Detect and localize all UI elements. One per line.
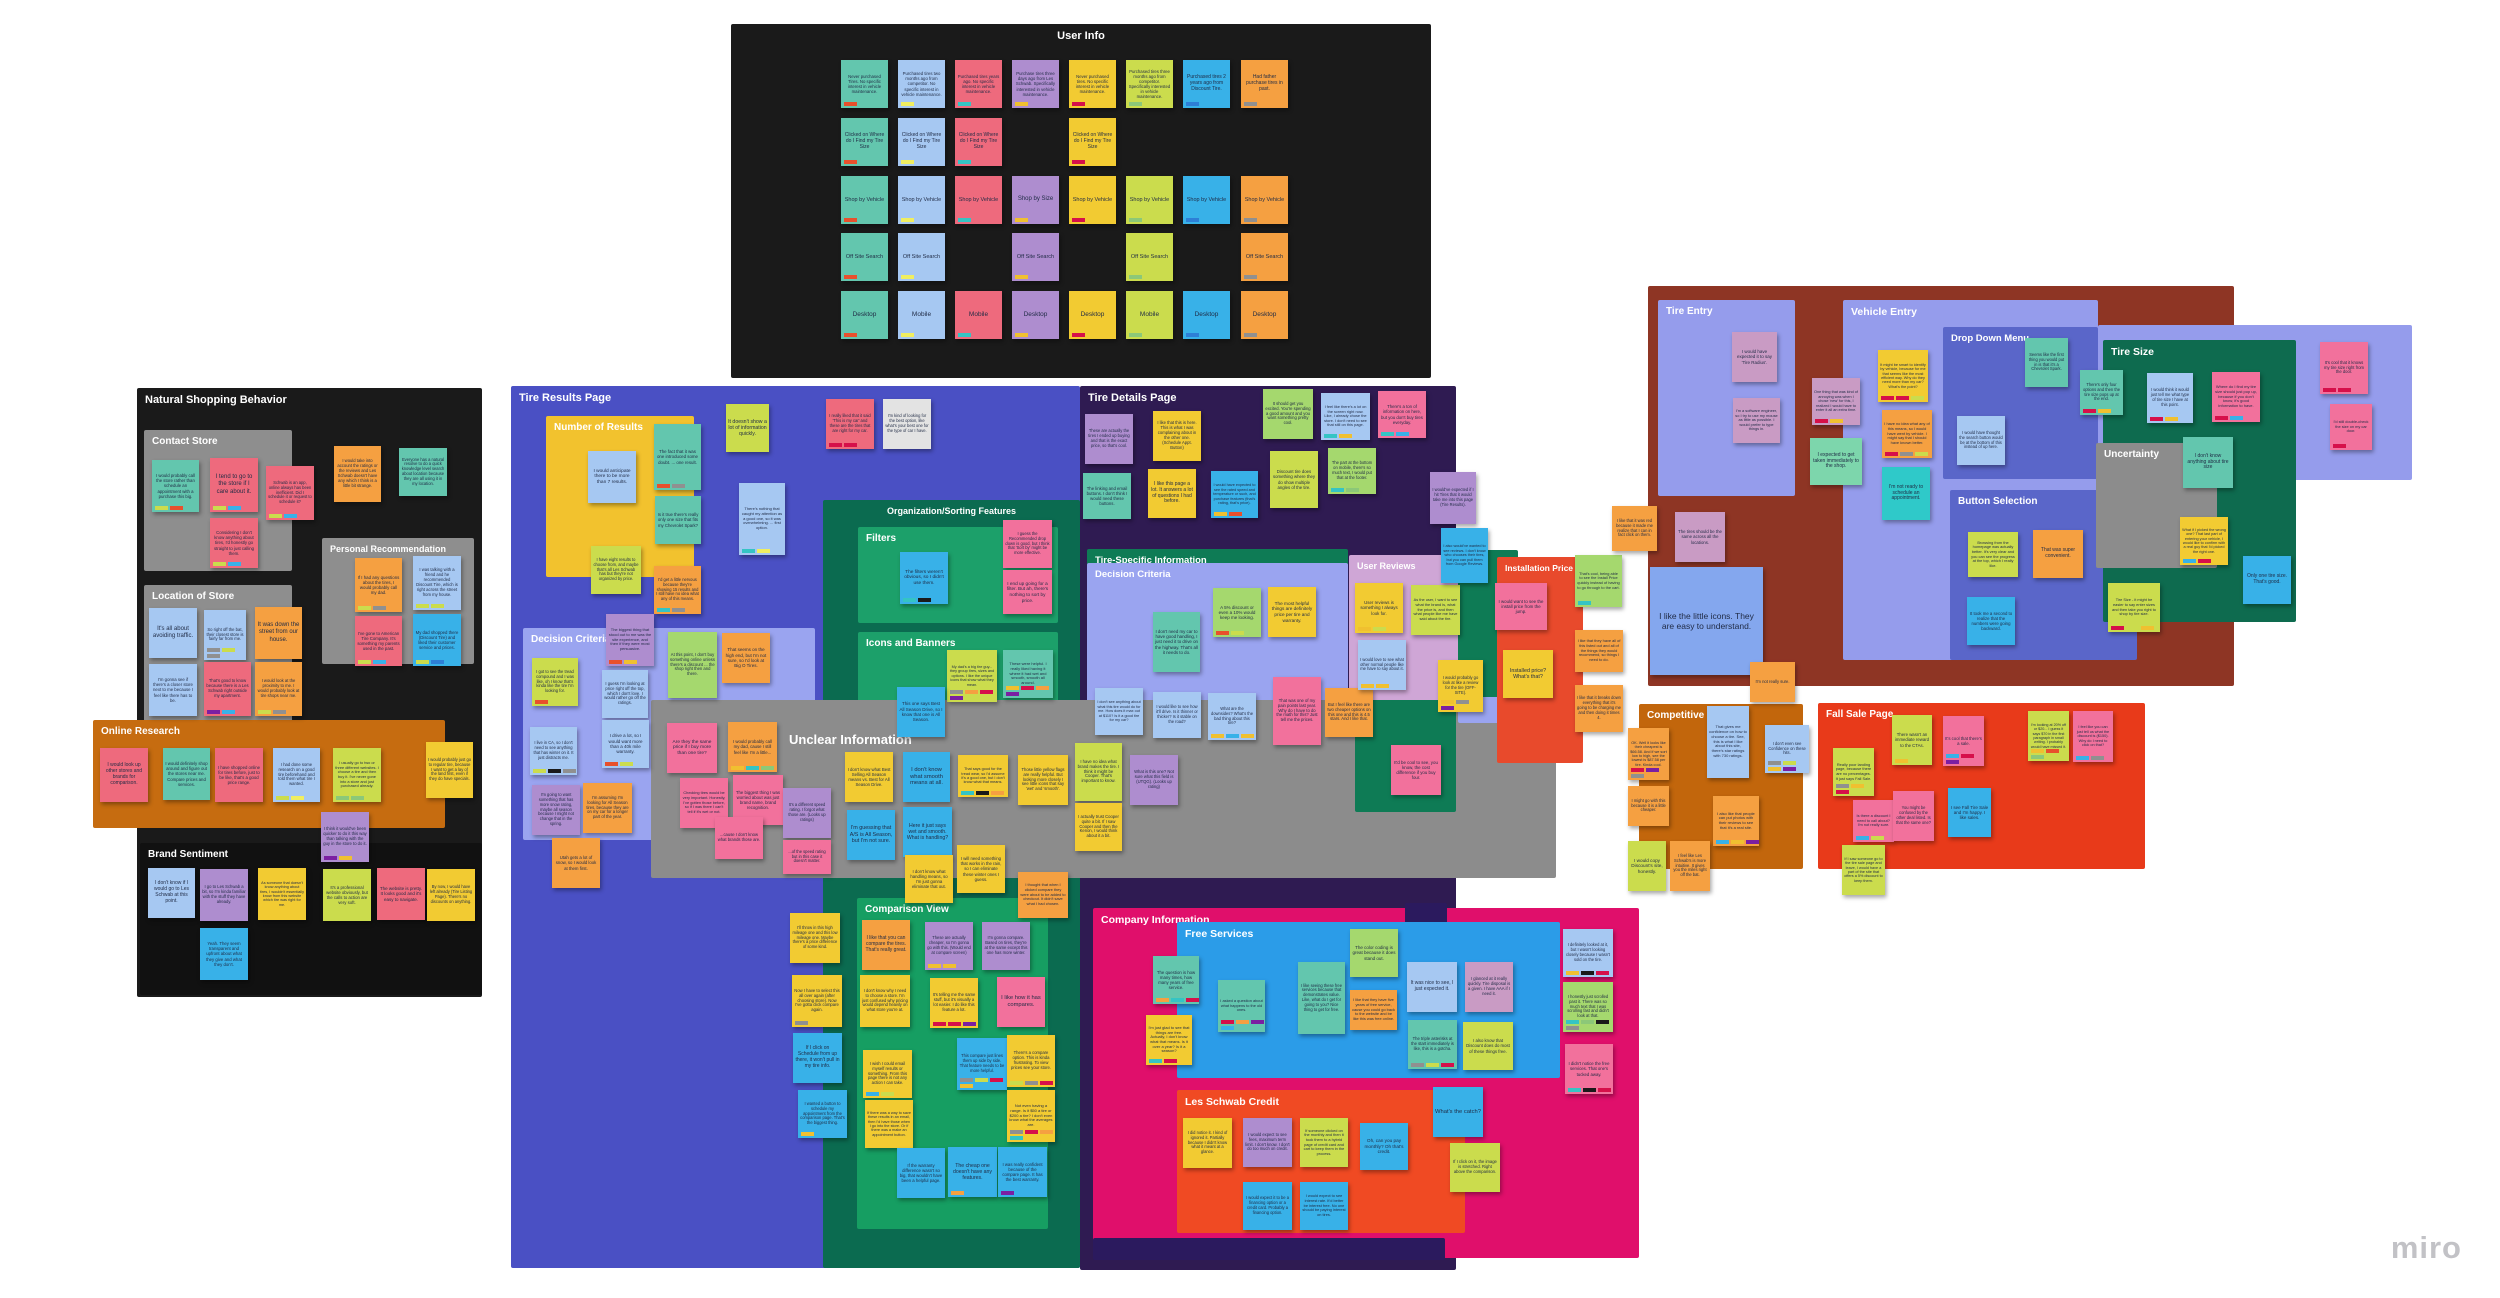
sticky-note[interactable]: If someone clicked on the monthly and th… bbox=[1300, 1118, 1348, 1167]
sticky-note[interactable]: The fact that it was one introduced some… bbox=[654, 424, 701, 490]
sticky-note[interactable]: That was one of my pain points last year… bbox=[1273, 677, 1321, 745]
sticky-note[interactable]: I don't know why I need to choose a stor… bbox=[860, 975, 910, 1027]
sticky-note[interactable]: I don't know anything about tire size bbox=[2183, 437, 2233, 488]
sticky-note[interactable]: I like that they have five years of free… bbox=[1350, 990, 1397, 1030]
sticky-note[interactable]: Really poor landing page, because there … bbox=[1833, 748, 1874, 796]
sticky-note[interactable]: Are they the same price if I buy more th… bbox=[667, 723, 717, 773]
sticky-note-text: I'd still double-check the size on my ca… bbox=[2332, 420, 2370, 434]
note-tag bbox=[1244, 333, 1257, 337]
sticky-note[interactable]: Clicked on Where do I Find my Tire Size bbox=[955, 118, 1002, 166]
sticky-note[interactable]: It's telling me the same stuff, but it's… bbox=[930, 978, 978, 1028]
sticky-note[interactable]: As someone that doesn't know anything ab… bbox=[258, 868, 306, 920]
sticky-note[interactable]: A 5% discount or even a 10% would keep m… bbox=[1213, 588, 1261, 637]
note-tag-row bbox=[901, 160, 914, 164]
sticky-note[interactable]: I was really confident because of the co… bbox=[998, 1147, 1047, 1197]
sticky-note[interactable]: That's good to know because there is a L… bbox=[204, 662, 251, 716]
sticky-note[interactable]: I would probably just go to regular tire… bbox=[426, 742, 473, 798]
sticky-note[interactable]: I like how it has compares. bbox=[997, 977, 1045, 1027]
note-tag bbox=[948, 1022, 961, 1026]
sticky-note-text: Only one tire size. That's good. bbox=[2245, 574, 2289, 586]
sticky-note[interactable]: I'll throw in this high mileage one and … bbox=[790, 913, 840, 963]
sticky-note[interactable]: Off Site Search bbox=[898, 233, 945, 281]
sticky-note[interactable]: I will need something that works in the … bbox=[957, 845, 1005, 893]
note-tag-row bbox=[2215, 416, 2243, 420]
sticky-note[interactable]: Mobile bbox=[898, 291, 945, 339]
note-tag bbox=[950, 696, 963, 700]
sticky-note[interactable]: I definitely looked at it, but I wasn't … bbox=[1563, 929, 1613, 977]
sticky-note[interactable]: Purchased tires three months ago from co… bbox=[1126, 60, 1173, 108]
sticky-note[interactable]: I was talking with a friend and he recom… bbox=[413, 556, 461, 610]
sticky-note-text: The fact that it was one introduced some… bbox=[656, 449, 699, 465]
sticky-note[interactable]: I don't need my car to have good handlin… bbox=[1153, 612, 1200, 672]
sticky-note[interactable]: I like the little icons. They are easy t… bbox=[1650, 567, 1763, 675]
note-tag bbox=[844, 218, 857, 222]
sticky-note[interactable]: I would have expected to see the rated s… bbox=[1211, 471, 1258, 518]
sticky-note[interactable]: I usually go to two or three different w… bbox=[333, 748, 381, 802]
sticky-note[interactable]: I might go with this because it is a lit… bbox=[1628, 786, 1669, 826]
sticky-note[interactable]: Clicked on Where do I Find my Tire Size bbox=[898, 118, 945, 166]
sticky-note[interactable]: Those little yellow flags are really hel… bbox=[1018, 755, 1068, 805]
sticky-note-text: Off Site Search bbox=[843, 254, 886, 260]
sticky-note[interactable]: I would've expected if I hit Tires that … bbox=[1430, 472, 1476, 524]
sticky-note-text: The filters weren't obvious, so I didn't… bbox=[902, 570, 946, 587]
sticky-note[interactable]: I live in CA, so I don't need to see any… bbox=[530, 727, 577, 775]
sticky-note[interactable]: Had father purchase tires in past. bbox=[1241, 60, 1288, 108]
sticky-note-text: It's a professional website obviously, b… bbox=[325, 885, 369, 905]
sticky-note[interactable]: I would expect to see interest rate. It'… bbox=[1300, 1182, 1348, 1230]
sticky-note[interactable]: These were helpful. I really liked havin… bbox=[1003, 650, 1053, 698]
note-tag-row bbox=[258, 710, 286, 714]
sticky-note[interactable]: If I saw someone go to the tire sale pag… bbox=[1842, 845, 1885, 895]
note-tag-row bbox=[866, 1092, 894, 1096]
sticky-note[interactable]: I honestly just scrolled past it. There … bbox=[1563, 982, 1613, 1032]
sticky-note[interactable]: Shop by Size bbox=[1012, 176, 1059, 224]
sticky-note[interactable]: Shop by Vehicle bbox=[898, 176, 945, 224]
sticky-note[interactable]: The biggest thing that stood out to me w… bbox=[606, 614, 654, 666]
sticky-note[interactable]: Here it just says wet and smooth. What i… bbox=[903, 807, 952, 857]
sticky-note[interactable]: What is this one? Not sure what this fie… bbox=[1130, 755, 1178, 805]
sticky-note[interactable]: OK. Well it looks like their cheapest is… bbox=[1628, 728, 1669, 780]
sticky-note[interactable]: The linking and email buttons. I don't t… bbox=[1083, 473, 1131, 519]
sticky-note[interactable]: I'm kind of looking for the best option,… bbox=[883, 399, 931, 449]
sticky-note[interactable]: Not even having a range. Is it $50 a tir… bbox=[1007, 1090, 1055, 1142]
note-tag-row bbox=[1221, 1020, 1265, 1030]
sticky-note[interactable]: I would have thought the search button w… bbox=[1957, 416, 2005, 465]
sticky-note-text: Is it true there's really only one size … bbox=[657, 512, 699, 527]
sticky-note[interactable]: Never purchased Tires. No specific inter… bbox=[841, 60, 888, 108]
note-tag-row bbox=[1010, 1130, 1055, 1140]
sticky-note[interactable]: It's cool that there's a sale. bbox=[1943, 716, 1984, 766]
sticky-note[interactable]: But I feel like there are two cheaper op… bbox=[1325, 688, 1373, 737]
sticky-note[interactable]: Purchased tires years ago. No specific i… bbox=[955, 60, 1002, 108]
sticky-note[interactable]: I guess I'm looking at price right off t… bbox=[602, 670, 648, 718]
sticky-note[interactable]: I don't know what handling means, so I'm… bbox=[905, 855, 953, 903]
sticky-note[interactable]: I'm just glad to see that things are fre… bbox=[1146, 1015, 1192, 1065]
sticky-note-text: Those little yellow flags are really hel… bbox=[1020, 768, 1066, 793]
sticky-note[interactable]: I thought that when I clicked compare th… bbox=[1018, 872, 1068, 918]
sticky-note[interactable]: One thing that was kind of annoying was … bbox=[1812, 378, 1860, 425]
sticky-note[interactable]: Desktop bbox=[1012, 291, 1059, 339]
note-tag bbox=[336, 796, 349, 800]
sticky-note[interactable]: I wish I could email myself results or s… bbox=[863, 1050, 912, 1098]
sticky-note[interactable]: Never purchased tires. No specific inter… bbox=[1069, 60, 1116, 108]
sticky-note[interactable]: By now, I would have left already (Tire … bbox=[427, 869, 475, 921]
sticky-note[interactable]: It should get you excited. You're spendi… bbox=[1263, 389, 1313, 439]
sticky-note[interactable]: I like that they have all of this listed… bbox=[1575, 630, 1623, 672]
sticky-note[interactable]: I'm going to want something that has mor… bbox=[532, 785, 580, 835]
note-tag-row bbox=[1015, 102, 1028, 106]
sticky-note[interactable]: Everyone has a natural resolve to do a q… bbox=[399, 448, 447, 496]
sticky-note[interactable]: That seems on the high end, but I'm not … bbox=[722, 633, 770, 683]
sticky-note-text: I have no idea what brand makes the tire… bbox=[1077, 760, 1120, 785]
frame-title-unclear-information: Unclear Information bbox=[789, 732, 912, 747]
note-tag-row bbox=[1015, 218, 1028, 222]
sticky-note[interactable]: I feel like Les Schwab's is more intuiti… bbox=[1670, 841, 1710, 891]
sticky-note-text: Tire Size - it might be easier to say en… bbox=[2110, 598, 2158, 616]
sticky-note[interactable]: I'm a software engineer, so I try to use… bbox=[1733, 398, 1780, 443]
sticky-note[interactable]: Shop by Vehicle bbox=[955, 176, 1002, 224]
sticky-note-text: Shop by Vehicle bbox=[1071, 197, 1114, 203]
sticky-note[interactable]: There's only four options and then the t… bbox=[2080, 370, 2123, 415]
sticky-note[interactable]: Now I have to select this all over again… bbox=[792, 975, 842, 1027]
frame-title-online-research: Online Research bbox=[101, 726, 180, 737]
sticky-note[interactable]: I feel like there's a lot on the screen … bbox=[1321, 393, 1370, 440]
sticky-note[interactable]: I like this page a lot. It answers a lot… bbox=[1148, 469, 1196, 518]
sticky-note[interactable]: I would have expected it to say 'Tire Ra… bbox=[1732, 332, 1777, 382]
note-tag bbox=[258, 710, 271, 714]
sticky-note-text: At this point, I don't buy something onl… bbox=[670, 653, 715, 678]
note-tag bbox=[170, 506, 183, 510]
sticky-note[interactable]: I'm gonna compare. Based on tires, they'… bbox=[982, 922, 1030, 970]
sticky-note[interactable]: That says good for the tread wear, so I'… bbox=[958, 755, 1008, 797]
frame-title-tire-size: Tire Size bbox=[2111, 346, 2154, 358]
sticky-note[interactable]: Desktop bbox=[1241, 291, 1288, 339]
sticky-note[interactable]: What's the catch? bbox=[1433, 1087, 1483, 1137]
sticky-note[interactable]: This compare just lines them up side by … bbox=[957, 1038, 1007, 1090]
sticky-note[interactable]: I like seeing these free services becaus… bbox=[1298, 962, 1345, 1034]
sticky-note[interactable]: As the user, I want to see what the bran… bbox=[1411, 585, 1460, 635]
sticky-note[interactable]: I feel like you can just tell us what th… bbox=[2073, 711, 2113, 762]
sticky-note[interactable]: That gives me confidence on how to choos… bbox=[1707, 706, 1749, 778]
sticky-note[interactable]: That's cool, being able to see the Insta… bbox=[1575, 555, 1622, 607]
sticky-note[interactable]: I'm assuming I'm looking for All Season … bbox=[583, 783, 632, 833]
sticky-note[interactable]: I would probably go look at like a revie… bbox=[1438, 660, 1483, 712]
sticky-note-text: Are they the same price if I buy more th… bbox=[669, 740, 715, 757]
sticky-note[interactable]: I wanted a button to schedule my appoint… bbox=[798, 1090, 847, 1138]
sticky-note[interactable]: Off Site Search bbox=[1241, 233, 1288, 281]
sticky-note-text: The tires should be the same across all … bbox=[1677, 529, 1723, 544]
sticky-note[interactable]: The triple asterisks at the start immedi… bbox=[1408, 1020, 1457, 1069]
sticky-note[interactable]: Desktop bbox=[841, 291, 888, 339]
note-tag bbox=[1830, 419, 1843, 423]
sticky-note-text: Off Site Search bbox=[900, 254, 943, 260]
sticky-note[interactable]: I don't know what smooth means at all. bbox=[903, 752, 950, 802]
sticky-note[interactable]: I also would've wanted to see reviews. I… bbox=[1441, 528, 1488, 583]
sticky-note[interactable]: I see Fall Tire Sale and I'm happy. I li… bbox=[1948, 788, 1991, 837]
sticky-note[interactable]: Seems like the first thing you would put… bbox=[2025, 338, 2068, 387]
sticky-note[interactable]: I asked a question about what happens to… bbox=[1218, 980, 1265, 1032]
sticky-note[interactable]: The filters weren't obvious, so I didn't… bbox=[900, 552, 948, 604]
sticky-note[interactable]: If I had any questions about the tires, … bbox=[355, 558, 402, 612]
sticky-note[interactable]: Utah gets a lot of snow, so I would look… bbox=[552, 838, 600, 888]
sticky-note[interactable]: There's a compare option. This is kinda … bbox=[1007, 1035, 1055, 1087]
sticky-note[interactable]: The question is how many times, how many… bbox=[1153, 956, 1199, 1004]
sticky-note-text: ...cause I don't know what brands those … bbox=[717, 833, 761, 843]
note-tag-row bbox=[901, 333, 914, 337]
note-tag-row bbox=[207, 710, 235, 714]
sticky-note[interactable]: That was super convenient. bbox=[2033, 530, 2083, 578]
sticky-note[interactable]: It'd be cool to see, you know, the cost … bbox=[1391, 745, 1441, 795]
sticky-note[interactable]: I like that it breaks down everything th… bbox=[1575, 685, 1623, 732]
sticky-note-text: Where do I find my tire size should just… bbox=[2214, 385, 2258, 409]
sticky-note[interactable]: I'm looking at 20% off or $20... I guess… bbox=[2028, 711, 2069, 761]
sticky-note[interactable]: I think it would've been quicker to do i… bbox=[321, 812, 369, 862]
note-tag bbox=[1036, 686, 1049, 690]
sticky-note[interactable]: It doesn't show a lot of information qui… bbox=[726, 404, 769, 452]
sticky-note-text: I'm a software engineer, so I try to use… bbox=[1735, 409, 1778, 432]
sticky-note-text: What is this one? Not sure what this fie… bbox=[1132, 770, 1176, 790]
sticky-note[interactable]: Purchased tires two months ago from comp… bbox=[898, 60, 945, 108]
sticky-note[interactable]: It's cool that it knows my tire size rig… bbox=[2320, 342, 2368, 394]
sticky-note[interactable]: Is it true there's really only one size … bbox=[655, 496, 701, 544]
sticky-note[interactable]: Installed price? What's that? bbox=[1503, 650, 1553, 698]
note-tag bbox=[1015, 275, 1028, 279]
frame-title-icons-and-banners: Icons and Banners bbox=[866, 638, 955, 649]
sticky-note[interactable]: I would look at the proximity to me. I w… bbox=[255, 662, 302, 716]
sticky-note[interactable]: I would like to see how it'll drive. Is … bbox=[1153, 692, 1201, 738]
sticky-note-text: I see Fall Tire Sale and I'm happy. I li… bbox=[1950, 805, 1989, 821]
sticky-note[interactable]: It took me a second to realize that the … bbox=[1967, 597, 2015, 645]
sticky-note[interactable]: What if I picked the wrong one? That las… bbox=[2180, 517, 2228, 565]
sticky-note[interactable]: Oh, can you pay monthly? Oh that's credi… bbox=[1360, 1123, 1408, 1170]
sticky-note[interactable]: At this point, I don't buy something onl… bbox=[668, 632, 717, 698]
sticky-note[interactable]: I would take into account the ratings or… bbox=[334, 446, 381, 502]
sticky-note[interactable]: I'm not really sure. bbox=[1750, 662, 1795, 702]
sticky-note-text: Shop by Vehicle bbox=[1185, 197, 1228, 203]
sticky-note[interactable]: Discount tire does something where they … bbox=[1270, 451, 1318, 508]
note-tag bbox=[961, 791, 974, 795]
note-tag-row bbox=[1768, 761, 1809, 771]
sticky-note[interactable]: The cheap one doesn't have any features. bbox=[948, 1147, 997, 1197]
sticky-note[interactable]: It was down the street from our house. bbox=[255, 607, 302, 659]
sticky-note[interactable]: I'm not ready to schedule an appointment… bbox=[1882, 467, 1930, 520]
note-tag bbox=[207, 710, 220, 714]
sticky-note[interactable]: I would think it would just tell me what… bbox=[2147, 373, 2193, 423]
sticky-note-text: Clicked on Where do I Find my Tire Size bbox=[900, 133, 943, 151]
sticky-note[interactable]: Tire Size - it might be easier to say en… bbox=[2108, 583, 2160, 632]
note-tag-row bbox=[1631, 768, 1669, 778]
sticky-note[interactable]: There's a ton of information on here, bu… bbox=[1378, 391, 1426, 438]
sticky-note[interactable]: So right off the bat, their closest stor… bbox=[204, 610, 246, 660]
sticky-note[interactable]: I like that this is here. This is what I… bbox=[1153, 411, 1201, 461]
sticky-note[interactable]: I would probably call my dad, cause I st… bbox=[728, 722, 777, 772]
sticky-note-text: I don't need my car to have good handlin… bbox=[1155, 629, 1198, 655]
sticky-note[interactable]: If there was a way to save these results… bbox=[865, 1100, 913, 1148]
sticky-note[interactable]: I like that you can compare the tires. T… bbox=[862, 920, 910, 970]
note-tag bbox=[2141, 626, 2154, 630]
note-tag bbox=[672, 484, 685, 488]
sticky-note[interactable]: I have eight results to choose from, and… bbox=[591, 546, 641, 594]
sticky-note[interactable]: I drive a lot, so I would want more than… bbox=[602, 720, 649, 768]
sticky-note[interactable]: I would want to see the install price fr… bbox=[1495, 583, 1547, 630]
sticky-note[interactable]: Browsing from the homepage was actually … bbox=[1968, 532, 2018, 577]
sticky-note-text: Shop by Vehicle bbox=[843, 197, 886, 203]
sticky-note[interactable]: I'd get a little nervous because they're… bbox=[654, 566, 701, 614]
sticky-note[interactable]: My dad shopped there (Discount Tire) and… bbox=[413, 614, 461, 666]
sticky-note[interactable]: I have no idea what any of this means, s… bbox=[1882, 410, 1932, 458]
sticky-note[interactable]: Considering I don't know anything about … bbox=[210, 518, 258, 568]
sticky-note[interactable]: The part at the bottom on mobile, there'… bbox=[1328, 448, 1376, 494]
sticky-note[interactable]: I did notice it. I kind of ignored it. P… bbox=[1183, 1118, 1232, 1168]
sticky-note[interactable]: I would anticipate there to be more than… bbox=[588, 451, 636, 503]
sticky-note[interactable]: My dad's a big tire guy... they group ti… bbox=[947, 650, 997, 702]
sticky-note[interactable]: Schwab is an app, online always has been… bbox=[266, 466, 314, 520]
sticky-note[interactable]: I end up going for a filter. But ah, the… bbox=[1003, 570, 1052, 614]
sticky-note[interactable]: The website is pretty. It looks good and… bbox=[377, 868, 425, 920]
sticky-note[interactable]: It might be smart to identify by vehicle… bbox=[1878, 350, 1928, 402]
sticky-note[interactable]: I would expect to see fees, maximum term… bbox=[1243, 1118, 1292, 1167]
sticky-note[interactable]: This one says Best All Season Drive, so … bbox=[897, 687, 945, 737]
note-tag-row bbox=[1214, 512, 1242, 516]
sticky-note[interactable]: You might be confused by the other deal … bbox=[1893, 791, 1934, 841]
sticky-note-text: It doesn't show a lot of information qui… bbox=[728, 419, 767, 437]
sticky-note-text: I would want to see the install price fr… bbox=[1497, 599, 1545, 615]
sticky-note[interactable]: It was nice to see, I just expected it. bbox=[1407, 962, 1457, 1012]
sticky-note[interactable]: I would love to see what other normal pe… bbox=[1358, 640, 1406, 690]
sticky-note[interactable]: If the warranty difference wasn't so big… bbox=[897, 1148, 945, 1198]
sticky-note[interactable]: I actually trust Cooper quite a bit. If … bbox=[1075, 803, 1122, 851]
sticky-note[interactable]: ...cause I don't know what brands those … bbox=[715, 817, 763, 859]
sticky-note-text: Installed price? What's that? bbox=[1505, 668, 1551, 681]
note-tag-row bbox=[961, 791, 1004, 795]
sticky-note[interactable]: There's nothing that caught my attention… bbox=[739, 483, 785, 555]
sticky-note[interactable]: These are actually cheaper, so I'm gonna… bbox=[925, 922, 973, 970]
note-tag-row bbox=[1129, 275, 1142, 279]
sticky-note[interactable]: I would expect it to be a financing opti… bbox=[1243, 1182, 1292, 1230]
sticky-note-text: Clicked on Where do I Find my Tire Size bbox=[843, 133, 886, 151]
sticky-note[interactable]: Shop by Vehicle bbox=[841, 176, 888, 224]
note-tag bbox=[795, 1021, 808, 1025]
note-tag bbox=[358, 606, 371, 610]
sticky-note[interactable]: I would copy Discount's site, honestly. bbox=[1628, 841, 1666, 891]
sticky-note[interactable]: Only one tire size. That's good. bbox=[2243, 556, 2291, 604]
sticky-note[interactable]: I don't know what Best Selling All Seaso… bbox=[845, 752, 893, 802]
sticky-note[interactable]: The tires should be the same across all … bbox=[1675, 512, 1725, 562]
sticky-note[interactable]: Yeah. They seem transparent and upfront … bbox=[200, 928, 248, 980]
sticky-note[interactable]: Mobile bbox=[955, 291, 1002, 339]
sticky-note[interactable]: I would look up other stores and brands … bbox=[100, 748, 148, 802]
sticky-note[interactable]: Desktop bbox=[1183, 291, 1230, 339]
sticky-note[interactable]: I would probably call the store rather t… bbox=[152, 460, 199, 512]
sticky-note[interactable]: I expected to get taken immediately to t… bbox=[1810, 438, 1862, 485]
sticky-note[interactable]: Off Site Search bbox=[841, 233, 888, 281]
sticky-note[interactable]: Where do I find my tire size should just… bbox=[2212, 372, 2260, 422]
sticky-note[interactable]: ...of the speed rating but in this case … bbox=[783, 840, 831, 874]
sticky-note[interactable]: It's a different speed rating. I forgot … bbox=[783, 788, 831, 838]
sticky-note[interactable]: I had done some research on a good tire … bbox=[273, 748, 320, 802]
sticky-note[interactable]: The most helpful things are definitely p… bbox=[1268, 587, 1316, 637]
sticky-note[interactable]: Shop by Vehicle bbox=[1183, 176, 1230, 224]
sticky-note-text: I like the little icons. They are easy t… bbox=[1652, 611, 1761, 631]
sticky-note[interactable]: I really liked that it said 'This is my … bbox=[826, 399, 874, 449]
note-tag-row bbox=[1015, 333, 1028, 337]
sticky-note[interactable]: Purchased tires 2 years ago from Discoun… bbox=[1183, 60, 1230, 108]
sticky-note[interactable]: What are the downsides? What's the bad t… bbox=[1208, 693, 1256, 740]
sticky-note[interactable]: I don't know if I would go to Les Schwab… bbox=[148, 868, 195, 918]
sticky-note[interactable]: I would definitely shop around and figur… bbox=[163, 748, 210, 800]
sticky-note[interactable]: There wasn't an immediate reward to the … bbox=[1892, 715, 1932, 765]
note-tag-row bbox=[207, 648, 246, 658]
sticky-note[interactable]: Is there a discount I need to call about… bbox=[1853, 800, 1894, 842]
sticky-note[interactable]: I have no idea what brand makes the tire… bbox=[1075, 743, 1122, 801]
sticky-note[interactable]: Mobile bbox=[1126, 291, 1173, 339]
sticky-note-text: User reviews is something I always look … bbox=[1357, 600, 1401, 616]
sticky-note[interactable]: If I click on it, the image is stretched… bbox=[1450, 1143, 1500, 1192]
sticky-note[interactable]: I've gone to American Tire Company. It's… bbox=[355, 616, 402, 666]
note-tag-row bbox=[742, 549, 770, 553]
sticky-note[interactable]: It's all about avoiding traffic. bbox=[149, 608, 197, 658]
sticky-note[interactable]: Desktop bbox=[1069, 291, 1116, 339]
sticky-note[interactable]: I don't even see Confidence on these hit… bbox=[1765, 725, 1809, 773]
sticky-note[interactable]: Shop by Vehicle bbox=[1069, 176, 1116, 224]
frame-navy-bottom[interactable] bbox=[1093, 1238, 1445, 1260]
sticky-note[interactable]: I tend to go to the store if I care abou… bbox=[210, 458, 258, 512]
sticky-note-text: I would think it would just tell me what… bbox=[2149, 388, 2191, 407]
note-tag bbox=[351, 796, 364, 800]
sticky-note[interactable]: These are actually the tires I ended up … bbox=[1085, 414, 1133, 464]
sticky-note[interactable]: Purchase tires three days ago from Les S… bbox=[1012, 60, 1059, 108]
sticky-note[interactable]: I have shopped online for tires before, … bbox=[215, 748, 263, 802]
sticky-note[interactable]: I didn't notice the free services. That … bbox=[1565, 1044, 1613, 1094]
sticky-note[interactable]: I go to Les Schwab a bit, so I'm kinda f… bbox=[200, 869, 248, 921]
sticky-note[interactable]: Shop by Vehicle bbox=[1126, 176, 1173, 224]
sticky-note[interactable]: The color coding is great because it doe… bbox=[1350, 929, 1398, 977]
sticky-note-text: It should get you excited. You're spendi… bbox=[1265, 402, 1311, 427]
sticky-note[interactable]: I guess the Recommended drop down is goo… bbox=[1003, 520, 1052, 568]
sticky-note[interactable]: I got to see the tread compound and I wa… bbox=[532, 658, 578, 706]
sticky-note[interactable]: Shop by Vehicle bbox=[1241, 176, 1288, 224]
sticky-note[interactable]: I don't see anything about what this tir… bbox=[1095, 688, 1143, 735]
frame-title-comparison-view: Comparison View bbox=[865, 904, 949, 915]
sticky-note[interactable]: Off Site Search bbox=[1012, 233, 1059, 281]
sticky-note[interactable]: User reviews is something I always look … bbox=[1355, 583, 1403, 633]
sticky-note[interactable]: Off Site Search bbox=[1126, 233, 1173, 281]
sticky-note[interactable]: If I click on Schedule from up there, it… bbox=[793, 1033, 842, 1083]
sticky-note[interactable]: I glanced at it really quickly. Tire dis… bbox=[1465, 962, 1513, 1012]
note-tag bbox=[620, 762, 633, 766]
sticky-note[interactable]: It's a professional website obviously, b… bbox=[323, 869, 371, 921]
note-tag bbox=[207, 648, 220, 652]
note-tag bbox=[535, 700, 548, 704]
sticky-note-text: I would have expected to see the rated s… bbox=[1213, 483, 1256, 505]
miro-logo[interactable]: miro bbox=[2391, 1230, 2462, 1266]
sticky-note[interactable]: I'm gonna see if there's a closer store … bbox=[149, 664, 197, 716]
note-tag bbox=[548, 769, 561, 773]
sticky-note-text: I was really confident because of the co… bbox=[1000, 1162, 1045, 1182]
sticky-note-text: Discount tire does something where they … bbox=[1272, 469, 1316, 489]
sticky-note[interactable]: I also know that Discount does do most o… bbox=[1463, 1022, 1513, 1070]
sticky-note-text: I end up going for a filter. But ah, the… bbox=[1005, 581, 1050, 603]
sticky-note[interactable]: Clicked on Where do I Find my Tire Size bbox=[841, 118, 888, 166]
sticky-note[interactable]: I also like that people can put photos w… bbox=[1713, 796, 1759, 846]
note-tag bbox=[339, 856, 352, 860]
sticky-note[interactable]: I like that it was red because it made m… bbox=[1612, 506, 1657, 551]
sticky-note[interactable]: I'd still double-check the size on my ca… bbox=[2330, 404, 2372, 450]
sticky-note-text: Oh, can you pay monthly? Oh that's credi… bbox=[1362, 1138, 1406, 1155]
sticky-note[interactable]: I'm guessing that A/S is All Season, but… bbox=[847, 810, 895, 860]
note-tag-row bbox=[951, 1191, 979, 1195]
sticky-note[interactable]: Clicked on Where do I Find my Tire Size bbox=[1069, 118, 1116, 166]
